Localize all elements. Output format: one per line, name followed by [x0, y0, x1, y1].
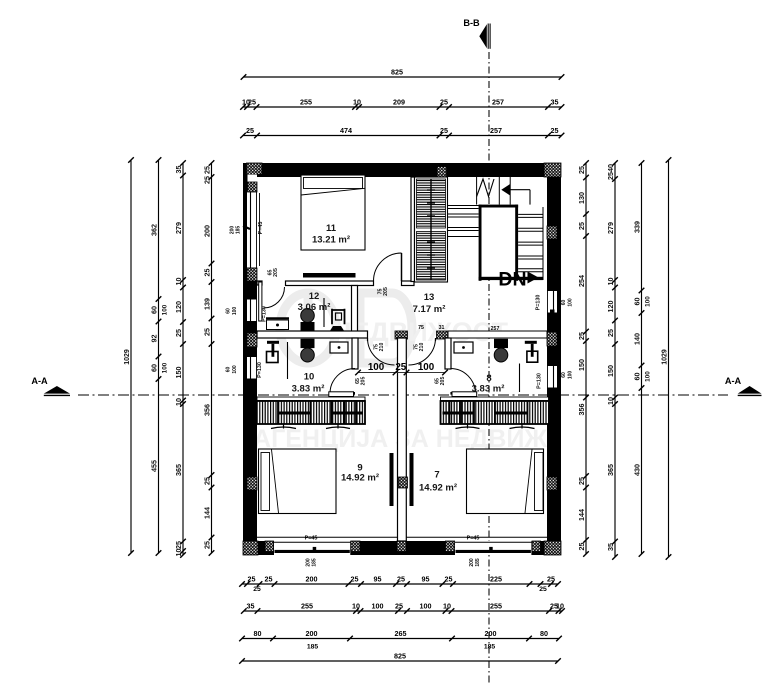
- svg-text:P=130: P=130: [262, 306, 268, 322]
- svg-text:140: 140: [632, 333, 641, 345]
- svg-text:13.21 m²: 13.21 m²: [312, 235, 350, 246]
- svg-text:25: 25: [397, 574, 405, 583]
- svg-text:200: 200: [306, 629, 318, 638]
- svg-text:455: 455: [149, 460, 158, 472]
- svg-text:35: 35: [174, 166, 183, 174]
- svg-text:25: 25: [539, 586, 547, 593]
- svg-text:25: 25: [246, 126, 254, 135]
- svg-text:257: 257: [492, 97, 504, 106]
- svg-text:P=130: P=130: [537, 373, 543, 389]
- svg-text:P=130: P=130: [257, 362, 263, 378]
- svg-text:255: 255: [300, 97, 312, 106]
- svg-text:14.92 m²: 14.92 m²: [341, 473, 379, 484]
- svg-text:25: 25: [395, 601, 403, 610]
- svg-text:430: 430: [632, 464, 641, 476]
- svg-text:14.92 m²: 14.92 m²: [419, 483, 457, 494]
- svg-text:3.06 m²: 3.06 m²: [298, 302, 331, 313]
- svg-text:25: 25: [202, 541, 211, 549]
- svg-text:10: 10: [606, 397, 615, 405]
- svg-text:10: 10: [352, 601, 360, 610]
- svg-text:100: 100: [645, 296, 652, 307]
- svg-text:255: 255: [301, 601, 313, 610]
- svg-text:80: 80: [254, 629, 262, 638]
- svg-text:365: 365: [174, 464, 183, 476]
- svg-text:150: 150: [577, 359, 586, 371]
- svg-text:7: 7: [434, 470, 439, 481]
- svg-text:210: 210: [379, 343, 385, 352]
- svg-text:1029: 1029: [661, 349, 668, 365]
- svg-text:12: 12: [309, 291, 320, 302]
- svg-text:DN: DN: [498, 269, 526, 291]
- svg-text:25: 25: [202, 176, 211, 184]
- svg-text:1029: 1029: [124, 349, 131, 365]
- svg-text:35: 35: [551, 97, 559, 106]
- svg-text:92: 92: [149, 335, 158, 343]
- svg-text:10: 10: [174, 278, 183, 286]
- svg-text:95: 95: [422, 574, 430, 583]
- svg-text:3.83 m²: 3.83 m²: [292, 384, 325, 395]
- svg-text:60: 60: [226, 367, 232, 373]
- svg-text:100: 100: [368, 362, 385, 373]
- svg-text:35: 35: [606, 543, 615, 551]
- svg-text:100: 100: [420, 601, 432, 610]
- svg-text:25: 25: [253, 586, 261, 593]
- svg-text:120: 120: [606, 301, 615, 313]
- svg-text:209: 209: [393, 97, 405, 106]
- svg-text:200: 200: [306, 574, 318, 583]
- svg-text:P=45: P=45: [258, 222, 264, 235]
- svg-text:25: 25: [551, 126, 559, 135]
- svg-text:B-B: B-B: [463, 18, 480, 28]
- svg-text:825: 825: [391, 67, 403, 76]
- svg-text:25: 25: [395, 362, 406, 373]
- svg-text:100: 100: [568, 371, 574, 380]
- svg-text:25: 25: [202, 269, 211, 277]
- svg-text:A-A: A-A: [31, 376, 48, 386]
- svg-text:100: 100: [568, 298, 574, 307]
- svg-text:185: 185: [475, 558, 481, 567]
- svg-text:60: 60: [561, 372, 567, 378]
- svg-text:185: 185: [236, 226, 242, 235]
- svg-text:25: 25: [577, 543, 586, 551]
- svg-text:339: 339: [632, 221, 641, 233]
- svg-text:185: 185: [311, 558, 317, 567]
- svg-text:3.83 m²: 3.83 m²: [472, 384, 505, 395]
- svg-text:205: 205: [440, 377, 446, 386]
- svg-text:P=45: P=45: [305, 535, 318, 541]
- svg-text:825: 825: [394, 651, 406, 660]
- svg-text:10: 10: [174, 398, 183, 406]
- svg-text:100: 100: [232, 307, 238, 316]
- svg-text:10: 10: [443, 601, 451, 610]
- svg-text:8: 8: [486, 373, 491, 384]
- svg-text:100: 100: [645, 371, 652, 382]
- svg-text:25: 25: [265, 574, 273, 583]
- svg-text:25: 25: [577, 222, 586, 230]
- svg-text:205: 205: [383, 287, 389, 296]
- svg-text:25: 25: [248, 574, 256, 583]
- svg-text:205: 205: [360, 377, 366, 386]
- svg-text:144: 144: [202, 507, 211, 519]
- svg-text:A-A: A-A: [725, 376, 742, 386]
- svg-text:35: 35: [247, 601, 255, 610]
- svg-text:200: 200: [202, 225, 211, 237]
- svg-text:60: 60: [149, 306, 158, 314]
- svg-text:265: 265: [395, 629, 407, 638]
- svg-text:130: 130: [577, 192, 586, 204]
- svg-text:279: 279: [174, 222, 183, 234]
- svg-text:25: 25: [606, 329, 615, 337]
- svg-text:200: 200: [485, 629, 497, 638]
- svg-text:25: 25: [174, 329, 183, 337]
- svg-text:205: 205: [273, 268, 279, 277]
- svg-text:25: 25: [351, 574, 359, 583]
- svg-text:100: 100: [162, 362, 169, 373]
- svg-text:25: 25: [174, 541, 183, 549]
- svg-text:254: 254: [577, 275, 586, 287]
- svg-text:25: 25: [548, 326, 554, 332]
- svg-text:100: 100: [418, 362, 435, 373]
- svg-text:474: 474: [340, 126, 352, 135]
- svg-text:11: 11: [326, 223, 337, 234]
- svg-text:7.17 m²: 7.17 m²: [413, 304, 446, 315]
- svg-text:210: 210: [419, 343, 425, 352]
- svg-text:60: 60: [632, 373, 641, 381]
- svg-text:365: 365: [606, 464, 615, 476]
- svg-text:25: 25: [440, 97, 448, 106]
- svg-text:P=130: P=130: [536, 295, 542, 311]
- svg-text:75: 75: [418, 325, 424, 331]
- svg-text:25: 25: [248, 97, 256, 106]
- svg-text:10: 10: [556, 601, 564, 610]
- svg-text:25: 25: [577, 477, 586, 485]
- svg-text:25: 25: [577, 166, 586, 174]
- svg-text:185: 185: [484, 644, 496, 651]
- svg-text:60: 60: [226, 308, 232, 314]
- svg-text:257: 257: [491, 326, 500, 332]
- svg-text:10: 10: [304, 372, 315, 383]
- svg-text:255: 255: [490, 601, 502, 610]
- svg-text:80: 80: [540, 629, 548, 638]
- svg-text:25: 25: [577, 332, 586, 340]
- svg-text:150: 150: [174, 367, 183, 379]
- svg-text:25: 25: [249, 326, 256, 333]
- svg-text:225: 225: [490, 574, 502, 583]
- svg-text:356: 356: [202, 404, 211, 416]
- svg-text:25: 25: [202, 166, 211, 174]
- svg-text:356: 356: [577, 404, 586, 416]
- svg-text:10: 10: [174, 549, 183, 557]
- svg-text:31: 31: [439, 325, 445, 331]
- svg-text:279: 279: [606, 222, 615, 234]
- svg-text:150: 150: [606, 365, 615, 377]
- svg-text:257: 257: [490, 126, 502, 135]
- svg-text:144: 144: [577, 509, 586, 521]
- svg-text:120: 120: [174, 301, 183, 313]
- svg-text:25: 25: [547, 574, 555, 583]
- svg-text:362: 362: [149, 224, 158, 236]
- svg-text:25: 25: [606, 172, 615, 180]
- svg-text:25: 25: [202, 477, 211, 485]
- svg-text:100: 100: [162, 304, 169, 315]
- svg-text:60: 60: [632, 298, 641, 306]
- svg-text:95: 95: [374, 574, 382, 583]
- svg-text:P=45: P=45: [467, 535, 480, 541]
- svg-text:139: 139: [202, 298, 211, 310]
- svg-text:13: 13: [424, 292, 435, 303]
- svg-text:25: 25: [202, 328, 211, 336]
- svg-text:60: 60: [149, 364, 158, 372]
- svg-text:10: 10: [606, 278, 615, 286]
- svg-text:25: 25: [445, 574, 453, 583]
- svg-text:100: 100: [232, 365, 238, 374]
- svg-text:100: 100: [372, 601, 384, 610]
- svg-text:40: 40: [606, 164, 615, 172]
- svg-text:25: 25: [440, 126, 448, 135]
- svg-text:60: 60: [561, 300, 567, 306]
- svg-text:10: 10: [353, 97, 361, 106]
- svg-text:185: 185: [307, 644, 319, 651]
